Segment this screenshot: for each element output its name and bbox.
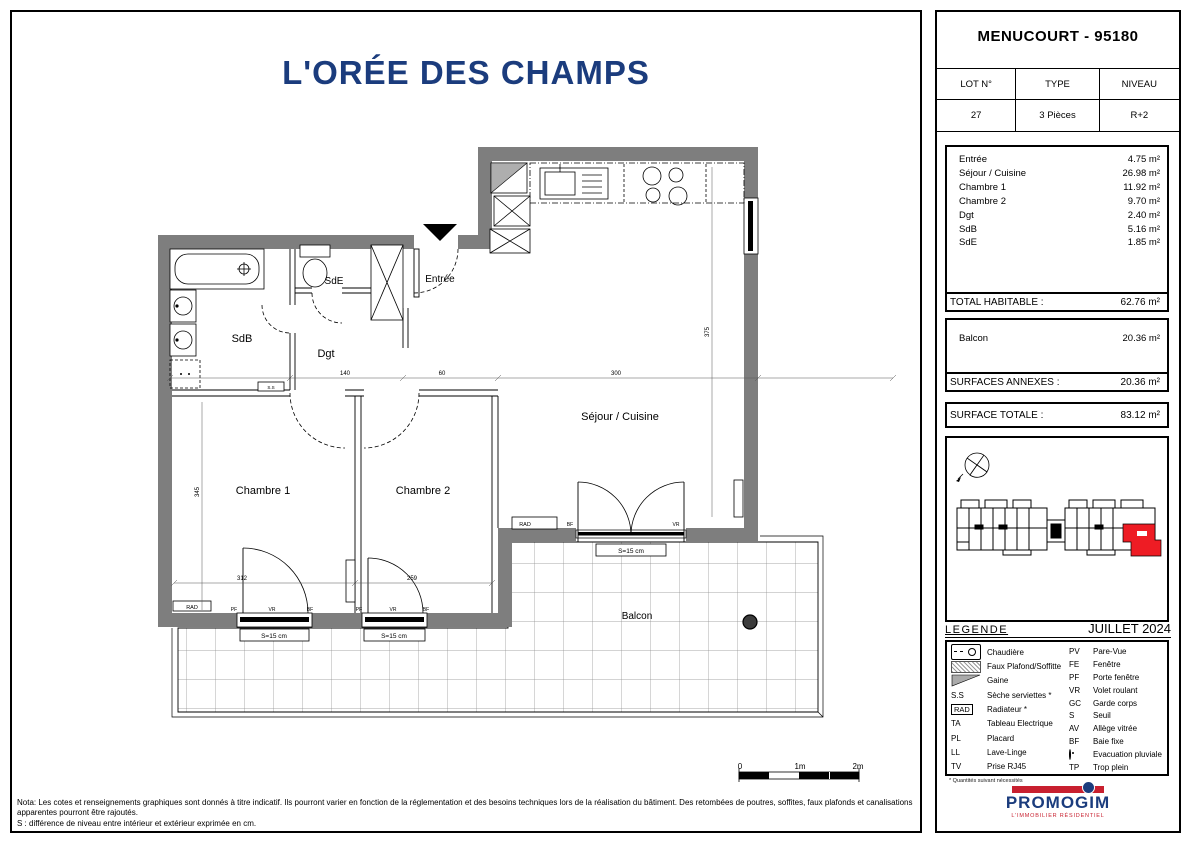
legend-code: GC (1069, 699, 1093, 708)
logo-circle-icon (1082, 781, 1095, 794)
room-label-sde: SdE (325, 276, 344, 287)
balcon-value: 20.36 m² (1123, 332, 1161, 346)
legend-item: RADRadiateur * (951, 702, 1069, 716)
legend-label: Evacuation pluviale (1093, 750, 1162, 759)
surface-value: 26.98 m² (1123, 167, 1161, 181)
rad-label: RAD (186, 605, 198, 611)
balcon-label: Balcon (959, 332, 988, 346)
legend-item: TPTrop plein (1069, 761, 1167, 774)
legend-label: Gaine (987, 676, 1008, 685)
seuil-label: S=15 cm (261, 633, 287, 640)
key-plan-drawing (947, 438, 1167, 620)
surface-label: SdB (959, 223, 977, 237)
surface-label: SdE (959, 236, 977, 250)
legend-code: PV (1069, 647, 1093, 656)
surface-label: Chambre 2 (959, 195, 1006, 209)
legend-label: Pare-Vue (1093, 647, 1127, 656)
room-label-sdb: SdB (232, 333, 253, 345)
nota-text: Nota: Les cotes et renseignements graphi… (17, 798, 915, 829)
surface-value: 11.92 m² (1123, 181, 1160, 195)
annexes-box: Balcon20.36 m² SURFACES ANNEXES : 20.36 … (945, 318, 1169, 392)
closet-icon (490, 196, 530, 253)
legend-code: S (1069, 711, 1093, 720)
room-label-chambre2: Chambre 2 (396, 485, 450, 497)
scale-bar: 0 1m 2m (738, 762, 864, 782)
dim-label: 140 (340, 371, 351, 377)
logo-bar-icon (1012, 786, 1104, 793)
door-chambre1 (290, 393, 345, 448)
surface-row: Séjour / Cuisine26.98 m² (947, 167, 1167, 181)
floor-plan: 140 60 300 312 259 345 375 Entrée SdE Sd… (12, 12, 916, 827)
dim-label: 300 (611, 371, 622, 377)
legend-item: Gaine (951, 674, 1069, 688)
surface-value: 4.75 m² (1128, 153, 1160, 167)
nota-line1: Nota: Les cotes et renseignements graphi… (17, 798, 915, 819)
cooktop-icon (643, 167, 661, 185)
surface-totale-box: SURFACE TOTALE : 83.12 m² (945, 402, 1169, 428)
highlighted-lot (1123, 524, 1161, 556)
legend-item: SSeuil (1069, 710, 1167, 723)
legend-code: TA (951, 719, 987, 728)
legend-item: AVAllège vitrée (1069, 722, 1167, 735)
legend-item: LLLave-Linge (951, 745, 1069, 759)
balcon-row: Balcon20.36 m² (947, 332, 1167, 346)
door-sdb (262, 305, 290, 333)
legend-label: Tableau Electrique (987, 719, 1053, 728)
dim-label: 345 (195, 486, 201, 497)
legend-code: AV (1069, 724, 1093, 733)
logo-name: PROMOGIM (1006, 794, 1110, 812)
code-label: BF (567, 522, 573, 528)
duct-icon (491, 163, 527, 193)
room-label-dgt: Dgt (317, 348, 334, 360)
surface-totale-label: SURFACE TOTALE : (950, 410, 1043, 421)
legend-code: PF (1069, 673, 1093, 682)
logo-tagline: L'IMMOBILIER RÉSIDENTIEL (1011, 813, 1104, 819)
legend-date: JUILLET 2024 (1088, 621, 1171, 636)
scale-1m: 1m (794, 762, 805, 771)
code-label: VR (269, 607, 276, 613)
surface-totale-value: 83.12 m² (1121, 410, 1160, 421)
door-sde (312, 293, 342, 323)
legend-footnote: * Quantités suivant nécessités (949, 778, 1023, 784)
room-label-sejour: Séjour / Cuisine (581, 411, 659, 423)
ss-label: S.S (267, 385, 274, 390)
legend-label: Prise RJ45 (987, 762, 1026, 771)
surface-value: 5.16 m² (1128, 223, 1160, 237)
drawing-sheet: 140 60 300 312 259 345 375 Entrée SdE Sd… (10, 10, 922, 833)
scale-2m: 2m (852, 762, 863, 771)
sink-icon (170, 290, 196, 356)
room-label-entree: Entrée (425, 274, 455, 285)
surface-label: Dgt (959, 209, 974, 223)
legend-item: TATableau Electrique (951, 717, 1069, 731)
legend-code: BF (1069, 737, 1093, 746)
seuil-label: S=15 cm (618, 548, 644, 555)
code-label: BF (423, 607, 429, 613)
compass-icon (956, 453, 989, 482)
seuil-label: S=15 cm (381, 633, 407, 640)
legend-label: Porte fenêtre (1093, 673, 1139, 682)
dim-label: 312 (237, 576, 248, 582)
rad-label: RAD (519, 522, 531, 528)
total-habitable-value: 62.76 m² (1121, 297, 1160, 308)
legend-header: LEGENDE JUILLET 2024 (945, 618, 1171, 638)
radiator-chambre2 (346, 560, 355, 602)
legend-code: RAD (951, 704, 987, 715)
scale-0: 0 (738, 762, 743, 771)
surface-row: Chambre 29.70 m² (947, 195, 1167, 209)
legend-label: Sèche serviettes * (987, 691, 1051, 700)
page-title: L'ORÉE DES CHAMPS (12, 54, 920, 92)
legend-label: Faux Plafond/Soffitte (987, 662, 1061, 671)
code-label: VR (390, 607, 397, 613)
legend-code: VR (1069, 686, 1093, 695)
surface-value: 2.40 m² (1128, 209, 1160, 223)
lot-header-type: TYPE (1016, 69, 1099, 100)
nota-line2: S : différence de niveau entre intérieur… (17, 819, 915, 829)
room-label-chambre1: Chambre 1 (236, 485, 290, 497)
legend-item: VRVolet roulant (1069, 684, 1167, 697)
door-chambre2 (364, 393, 419, 448)
legend-label: Garde corps (1093, 699, 1137, 708)
legend-left-column: Chaudière Faux Plafond/Soffitte Gaine S.… (951, 645, 1069, 774)
legend-label: Placard (987, 734, 1014, 743)
legend-item: PFPorte fenêtre (1069, 671, 1167, 684)
legend-code: LL (951, 748, 987, 757)
key-plan (945, 436, 1169, 622)
lot-value-niveau: R+2 (1100, 100, 1179, 131)
code-label: PF (356, 607, 362, 613)
legend-right-column: PVPare-Vue FEFenêtre PFPorte fenêtre VRV… (1069, 645, 1167, 774)
legend-label: Trop plein (1093, 763, 1128, 772)
legend-label: Lave-Linge (987, 748, 1027, 757)
legend-code: TP (1069, 763, 1093, 772)
rad-box: RAD (951, 704, 973, 715)
surface-value: 1.85 m² (1128, 236, 1160, 250)
lot-header-niveau: NIVEAU (1100, 69, 1179, 100)
legend-code: FE (1069, 660, 1093, 669)
dim-label: 259 (407, 576, 418, 582)
legend-title: LEGENDE (945, 624, 1008, 636)
legend-label: Fenêtre (1093, 660, 1121, 669)
surface-row: SdE1.85 m² (947, 236, 1167, 250)
dim-label: 375 (705, 326, 711, 337)
legend-item: S.SSèche serviettes * (951, 688, 1069, 702)
surface-value: 9.70 m² (1128, 195, 1160, 209)
room-label-balcon: Balcon (622, 611, 653, 622)
bathtub-icon (170, 249, 264, 289)
legend-item: Chaudière (951, 645, 1069, 659)
legend-item: TVPrise RJ45 (951, 760, 1069, 774)
legend-code: TV (951, 762, 987, 771)
legend-label: Baie fixe (1093, 737, 1124, 746)
surface-row: Dgt2.40 m² (947, 209, 1167, 223)
surfaces-annexes-row: SURFACES ANNEXES : 20.36 m² (947, 372, 1167, 390)
promogim-logo: PROMOGIM L'IMMOBILIER RÉSIDENTIEL (937, 786, 1179, 819)
lot-value-type: 3 Pièces (1016, 100, 1099, 131)
legend-label: Radiateur * (987, 705, 1027, 714)
city-title: MENUCOURT - 95180 (937, 28, 1179, 45)
legend-code: PL (951, 734, 987, 743)
chaudiere-icon (951, 644, 987, 660)
surface-totale-row: SURFACE TOTALE : 83.12 m² (947, 404, 1167, 426)
shaft-icon (371, 245, 403, 320)
code-label: PF (231, 607, 237, 613)
surface-row: SdB5.16 m² (947, 223, 1167, 237)
entrance-marker-icon (423, 224, 457, 241)
entrance-door (414, 224, 458, 297)
lot-table: LOT N° TYPE NIVEAU 27 3 Pièces R+2 (937, 68, 1179, 132)
surface-row: Chambre 111.92 m² (947, 181, 1167, 195)
code-label: BF (307, 607, 313, 613)
legend-label: Seuil (1093, 711, 1111, 720)
legend-item: Evacuation pluviale (1069, 748, 1167, 761)
rain-drain-icon (743, 615, 757, 629)
legend-item: PLPlacard (951, 731, 1069, 745)
surface-row: Entrée4.75 m² (947, 153, 1167, 167)
evacuation-pluviale-icon (1069, 750, 1093, 759)
lot-header-lot: LOT N° (937, 69, 1016, 100)
legend-item: Faux Plafond/Soffitte (951, 659, 1069, 673)
gaine-icon (951, 674, 987, 687)
legend-item: BFBaie fixe (1069, 735, 1167, 748)
surface-label: Séjour / Cuisine (959, 167, 1026, 181)
legend-item: GCGarde corps (1069, 697, 1167, 710)
legend-label: Chaudière (987, 648, 1024, 657)
total-habitable-row: TOTAL HABITABLE : 62.76 m² (947, 292, 1167, 310)
legend-item: PVPare-Vue (1069, 645, 1167, 658)
window-chambre1 (237, 548, 312, 641)
legend-item: FEFenêtre (1069, 658, 1167, 671)
legend-label: Allège vitrée (1093, 724, 1137, 733)
legend-box: Chaudière Faux Plafond/Soffitte Gaine S.… (945, 640, 1169, 776)
radiator-wall (734, 480, 743, 517)
dim-label: 60 (439, 371, 446, 377)
surfaces-box: Entrée4.75 m² Séjour / Cuisine26.98 m² C… (945, 145, 1169, 312)
surfaces-annexes-label: SURFACES ANNEXES : (950, 377, 1059, 388)
info-panel: MENUCOURT - 95180 LOT N° TYPE NIVEAU 27 … (935, 10, 1181, 833)
lot-value-lot: 27 (937, 100, 1016, 131)
surfaces-annexes-value: 20.36 m² (1121, 377, 1160, 388)
interior-walls (172, 249, 498, 613)
surface-label: Entrée (959, 153, 987, 167)
washer-icon (170, 360, 200, 388)
surface-label: Chambre 1 (959, 181, 1006, 195)
faux-plafond-icon (951, 661, 987, 673)
total-habitable-label: TOTAL HABITABLE : (950, 297, 1044, 308)
code-label: VR (673, 522, 680, 528)
legend-code: S.S (951, 691, 987, 700)
legend-label: Volet roulant (1093, 686, 1137, 695)
